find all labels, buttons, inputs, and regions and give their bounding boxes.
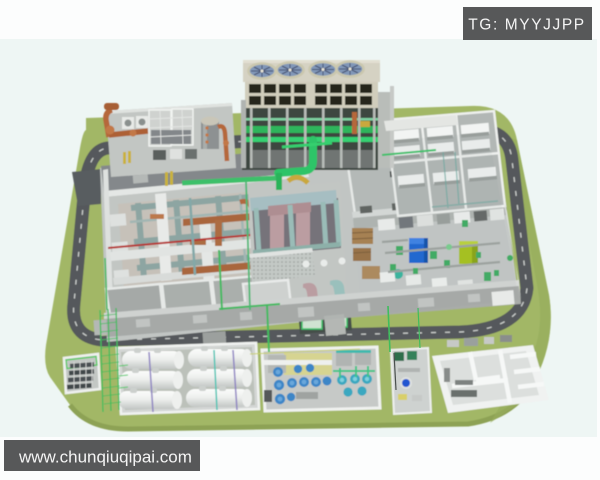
- svg-text:TG: MYYJJPP: TG: MYYJJPP: [468, 17, 586, 34]
- svg-text:www.chunqiuqipai.com: www.chunqiuqipai.com: [18, 448, 192, 467]
